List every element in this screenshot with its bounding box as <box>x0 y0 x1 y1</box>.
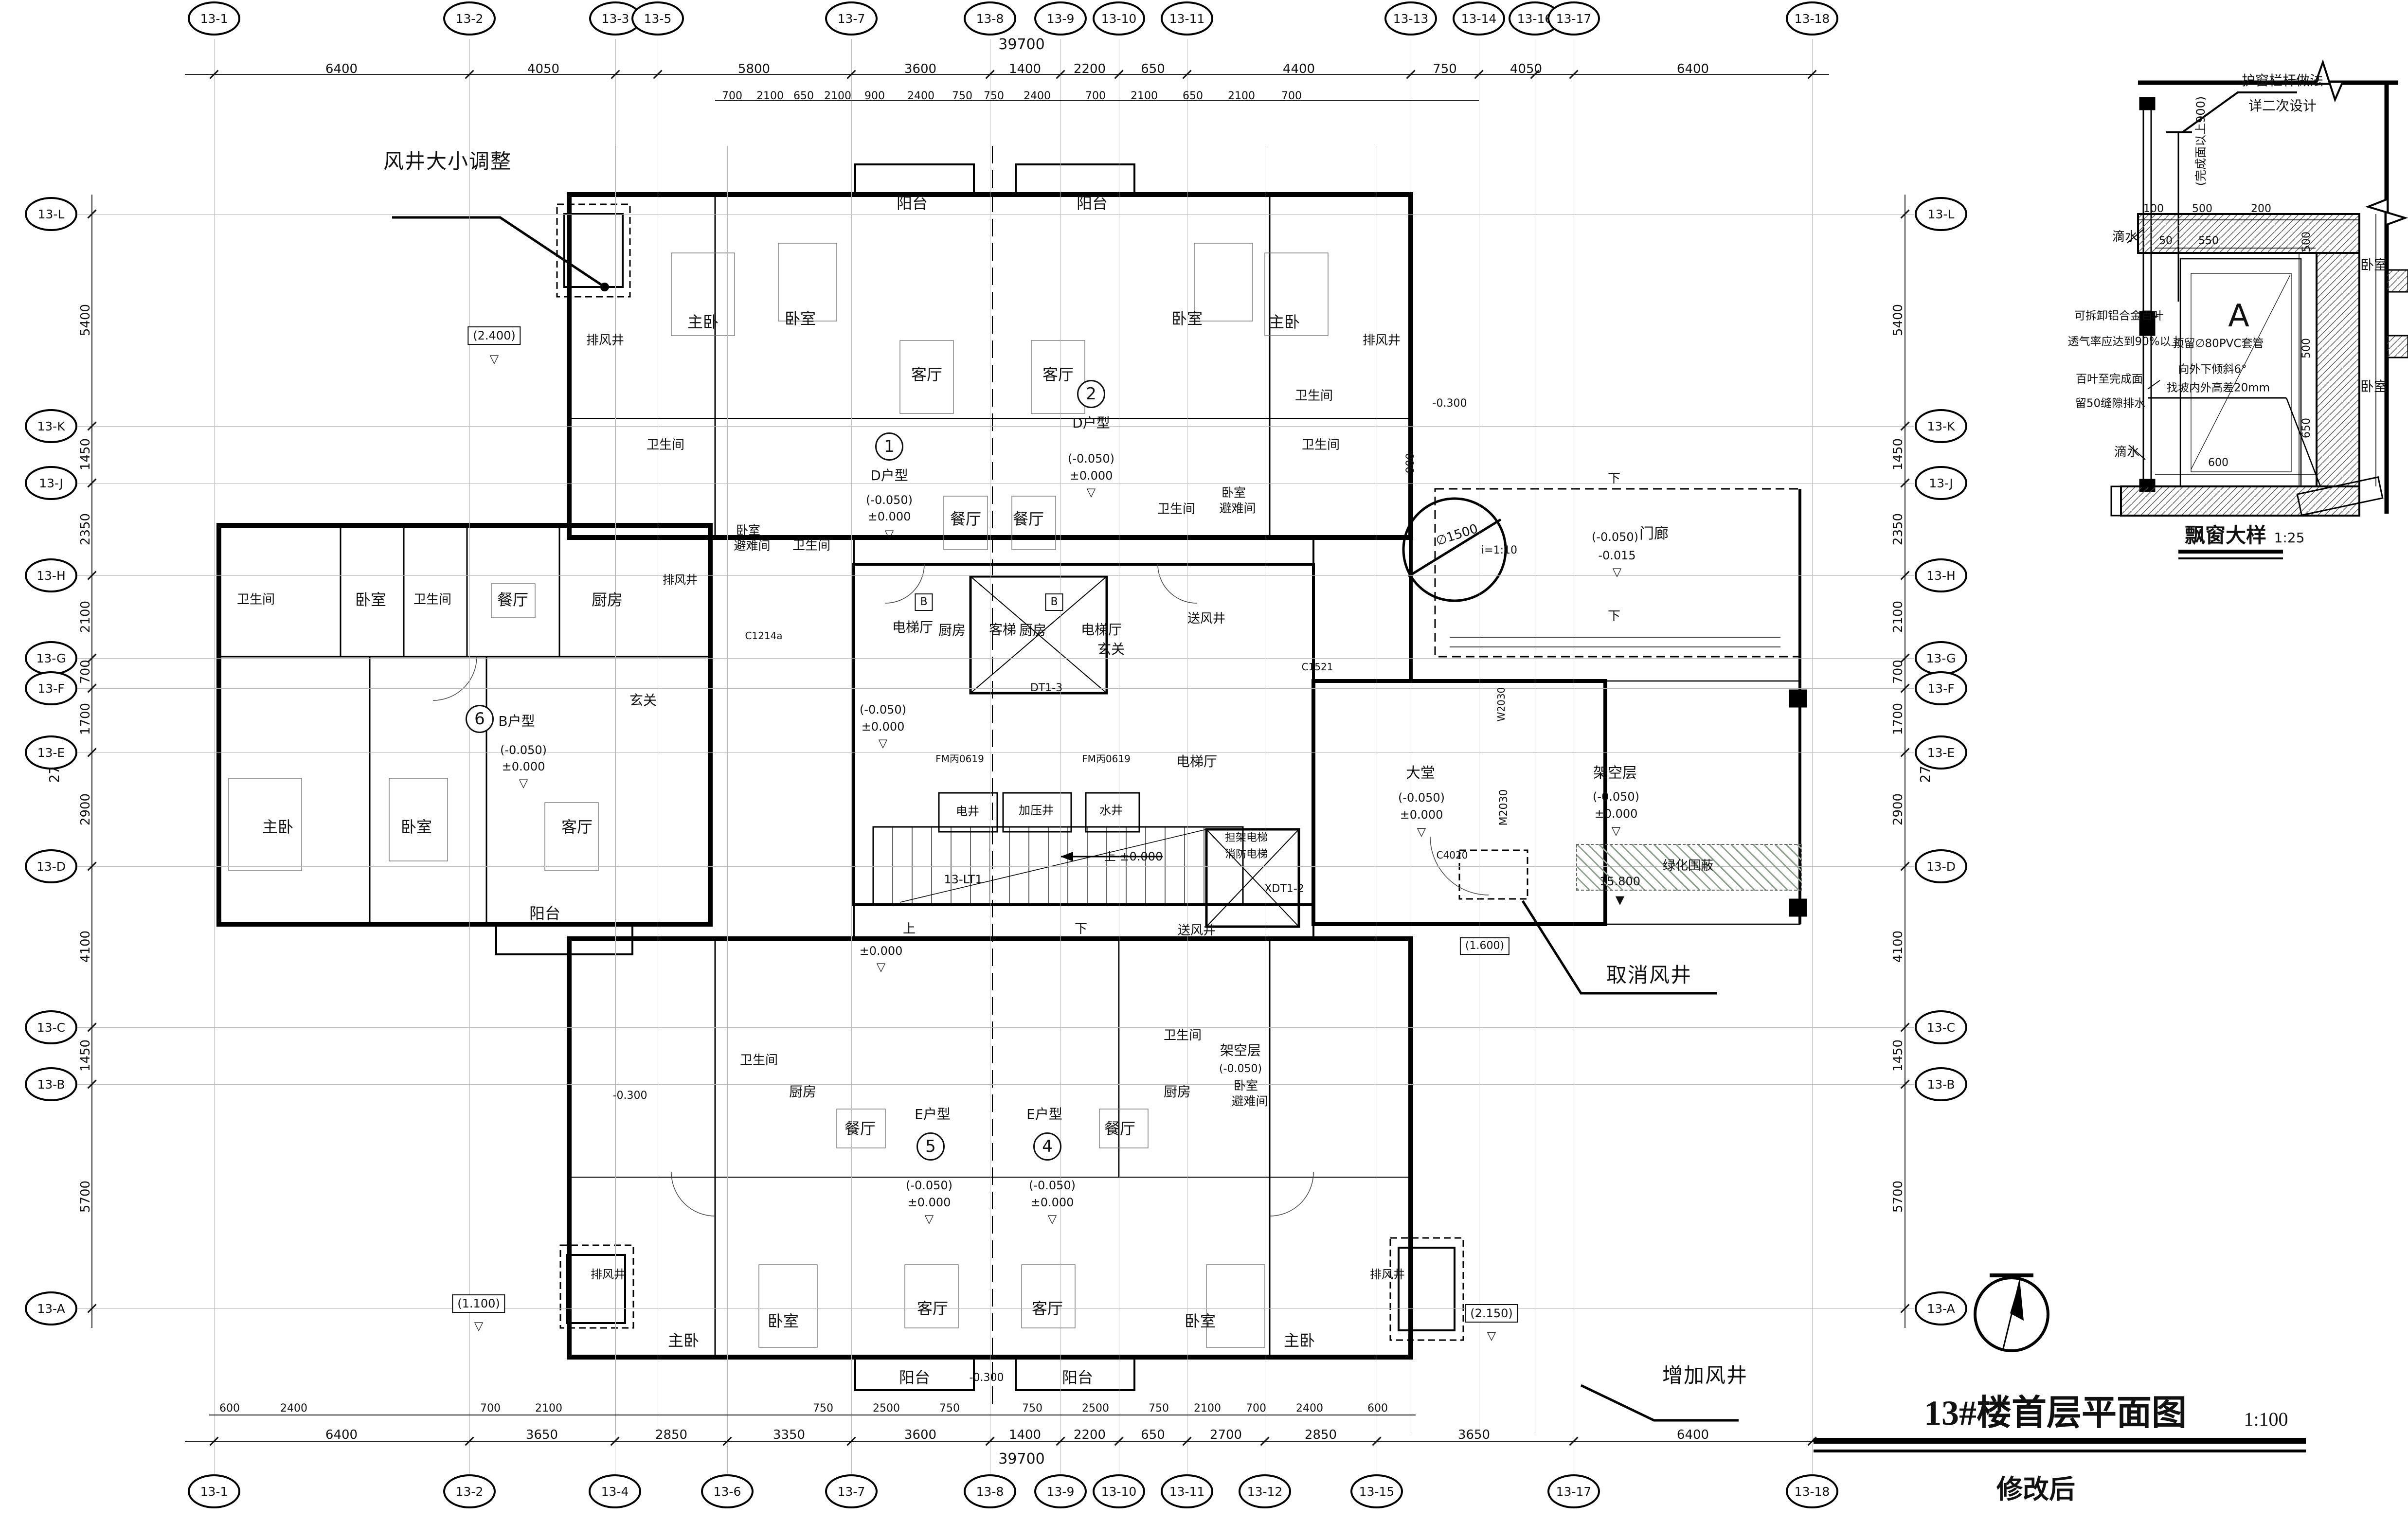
level-label: 15.800 <box>1599 876 1640 887</box>
dim: 4100 <box>79 931 92 963</box>
level-label: (-0.050) <box>1592 531 1638 543</box>
dim: 500 <box>2301 232 2312 252</box>
title-underline-thick <box>1814 1438 2306 1444</box>
room-label: 卧室 <box>401 819 432 835</box>
grid-bubble-13-K: 13-K <box>1915 409 1967 443</box>
dim: 650 <box>793 91 814 102</box>
room-label: 卧室 <box>1171 311 1203 326</box>
grid-line-13-5 <box>658 39 658 1435</box>
grid-bubble-13-H: 13-H <box>25 558 77 592</box>
sheet-title: 13#楼首层平面图 <box>1924 1396 2187 1431</box>
room-label: 厨房 <box>938 624 966 637</box>
dim: 5400 <box>79 304 92 336</box>
code-label: C1521 <box>1302 662 1333 672</box>
dim: 50 <box>2159 236 2173 247</box>
dim: 2850 <box>655 1429 687 1441</box>
room-label: 卧室 <box>736 524 760 537</box>
dim: 2100 <box>1131 91 1158 102</box>
dim: 6400 <box>1677 1429 1709 1441</box>
dim: 5800 <box>738 63 770 75</box>
room-label: 餐厅 <box>1013 511 1044 527</box>
grid-bubble-13-18: 13-18 <box>1786 1474 1838 1508</box>
room-label: 厨房 <box>789 1085 816 1099</box>
room-label: 电梯厅 <box>1176 755 1217 769</box>
detail-underline-thin <box>2178 557 2283 559</box>
level-label: ±0.000 <box>862 721 905 733</box>
level-mark: ▽ <box>879 737 887 749</box>
grid-line-13-B <box>73 1084 1914 1085</box>
code-label: XDT1-2 <box>1264 884 1304 895</box>
note-label: 预留∅80PVC套管 <box>2173 339 2264 350</box>
grid-bubble-13-8: 13-8 <box>964 1 1016 36</box>
room-label: 主卧 <box>1269 314 1300 330</box>
dim: 2100 <box>824 91 851 102</box>
room-label: 送风井 <box>1178 924 1216 937</box>
room-label: 卫生间 <box>1302 439 1340 451</box>
dim: 1700 <box>79 703 92 735</box>
dim: 2200 <box>1074 63 1106 75</box>
grid-line-13-3 <box>615 39 616 1435</box>
code-label: C1214a <box>745 631 782 641</box>
direction-label: 下 <box>1075 923 1087 935</box>
dim-total-bottom: 39700 <box>998 1452 1044 1467</box>
level-label: -0.015 <box>1598 550 1635 561</box>
level-label: ±0.000 <box>1070 470 1113 482</box>
level-mark: ▽ <box>877 961 885 973</box>
grid-line-13-17 <box>1574 146 1574 1474</box>
code-label: B <box>1045 593 1063 611</box>
grid-line-13-A <box>73 1308 1914 1309</box>
note-label: 找坡内外高差20mm <box>2167 383 2270 394</box>
level-label: (2.150) <box>1465 1304 1518 1323</box>
note-label: (完成面以上900) <box>2195 96 2207 186</box>
grid-bubble-13-G: 13-G <box>25 641 77 675</box>
note-label: 百叶至完成面 <box>2076 374 2143 385</box>
dim: 2400 <box>1024 91 1051 102</box>
grid-bubble-13-6: 13-6 <box>701 1474 754 1508</box>
title-underline-thin <box>1814 1450 2306 1452</box>
grid-line-13-2 <box>469 146 470 1474</box>
dim-line-left <box>91 195 92 1328</box>
dim: 6400 <box>325 1429 358 1441</box>
note-label: 护窗栏杆做法 <box>2242 74 2323 88</box>
grid-line-13-K <box>73 426 1914 427</box>
dim: 600 <box>2208 458 2228 468</box>
grid-bubble-13-A: 13-A <box>25 1291 77 1325</box>
room-label: 排风井 <box>1363 334 1401 347</box>
dim: 600 <box>219 1403 240 1414</box>
level-label: ±0.000 <box>1595 808 1638 820</box>
level-label: (-0.050) <box>906 1180 952 1191</box>
room-label: 客厅 <box>561 819 593 835</box>
room-label: 阳台 <box>899 1370 930 1385</box>
window-mark: A <box>2228 301 2249 332</box>
grid-bubble-13-J: 13-J <box>1915 466 1967 500</box>
dim: 2500 <box>873 1403 900 1414</box>
level-label: (-0.050) <box>1029 1180 1076 1191</box>
dim: 650 <box>1141 1429 1165 1441</box>
dim: 650 <box>1141 63 1165 75</box>
dim: 2350 <box>1892 513 1905 545</box>
grid-bubble-13-15: 13-15 <box>1350 1474 1403 1508</box>
dim: 2400 <box>1296 1403 1323 1414</box>
dim: 700 <box>79 660 92 684</box>
grid-line-13-12 <box>1265 146 1265 1474</box>
level-mark: ▽ <box>1612 825 1620 837</box>
grid-bubble-13-12: 13-12 <box>1239 1474 1291 1508</box>
dim: 650 <box>1183 91 1203 102</box>
room-label: 排风井 <box>586 334 624 347</box>
grid-bubble-13-17: 13-17 <box>1547 1474 1600 1508</box>
dim: 750 <box>1022 1403 1042 1414</box>
grid-line-13-14 <box>1479 39 1479 1435</box>
dim: 2100 <box>535 1403 562 1414</box>
level-label: -0.300 <box>613 1091 647 1101</box>
dim: 750 <box>952 91 972 102</box>
room-label: 送风井 <box>1187 612 1225 625</box>
dim: 1400 <box>1009 63 1041 75</box>
grid-bubble-13-F: 13-F <box>1915 671 1967 705</box>
grid-bubble-13-2: 13-2 <box>443 1 496 36</box>
dim: 550 <box>2198 236 2219 247</box>
room-label: 卧室 <box>768 1313 799 1329</box>
unit-type: D户型 <box>870 469 908 483</box>
room-label: 阳台 <box>897 196 928 211</box>
level-mark: ▽ <box>1487 1330 1496 1342</box>
grid-bubble-13-A: 13-A <box>1915 1291 1967 1325</box>
dim: 1450 <box>1892 1039 1905 1072</box>
grid-bubble-13-14: 13-14 <box>1453 1 1505 36</box>
note-label: 向外下倾斜6° <box>2178 364 2246 376</box>
direction-label: 下 <box>1608 610 1620 623</box>
level-mark: ▽ <box>474 1320 483 1332</box>
level-label: (1.600) <box>1460 937 1509 955</box>
detail-scale: 1:25 <box>2274 531 2305 545</box>
level-mark: ▽ <box>519 777 528 789</box>
dim: 500 <box>2192 204 2212 215</box>
grid-bubble-13-B: 13-B <box>25 1067 77 1101</box>
dim: 700 <box>1281 91 1302 102</box>
room-label: 卧室 <box>1222 487 1246 499</box>
room-label: 玄关 <box>629 694 657 707</box>
room-label: 卫生间 <box>647 439 684 451</box>
room-label: 主卧 <box>262 819 293 835</box>
dim: 3650 <box>526 1429 558 1441</box>
dim: 3350 <box>773 1429 805 1441</box>
note-label: 滴水 <box>2112 231 2138 243</box>
dim: 3600 <box>904 63 936 75</box>
room-label: 客厅 <box>1042 367 1074 382</box>
unit-type: E户型 <box>1026 1108 1062 1121</box>
dim: 4050 <box>1510 63 1542 75</box>
grid-line-13-13 <box>1411 39 1411 1435</box>
room-label: 卧室 <box>1234 1080 1258 1092</box>
room-label: 避难间 <box>734 540 770 552</box>
grid-bubble-13-K: 13-K <box>25 409 77 443</box>
room-label: 主卧 <box>1284 1333 1315 1348</box>
room-label: 主卧 <box>668 1333 699 1348</box>
unit-number: 6 <box>466 705 494 733</box>
room-label: 厨房 <box>592 592 623 608</box>
dim: 700 <box>722 91 742 102</box>
dim: 750 <box>1433 63 1457 75</box>
dim: 2200 <box>1074 1429 1106 1441</box>
room-label: 避难间 <box>1231 1095 1268 1108</box>
unit-type: E户型 <box>915 1108 951 1121</box>
dim: 500 <box>2301 338 2312 358</box>
level-label: (-0.050) <box>860 704 906 716</box>
dim: 2100 <box>756 91 784 102</box>
grid-bubble-13-2: 13-2 <box>443 1474 496 1508</box>
room-label: 餐厅 <box>845 1121 876 1136</box>
note-label: 留50缝隙排水 <box>2075 398 2145 410</box>
dim: 650 <box>2301 418 2312 438</box>
dim: 1450 <box>79 1039 92 1072</box>
unit-type: B户型 <box>498 715 535 728</box>
level-label: (1.100) <box>452 1294 505 1313</box>
level-mark: ▽ <box>1417 826 1426 838</box>
dim: 900 <box>864 91 885 102</box>
dim: 2900 <box>1892 793 1905 825</box>
grid-bubble-13-1: 13-1 <box>188 1474 240 1508</box>
dim: 700 <box>1085 91 1106 102</box>
unit-number: 2 <box>1077 380 1105 408</box>
grid-bubble-13-L: 13-L <box>1915 197 1967 231</box>
level-label: 上 ±0.000 <box>1104 851 1163 862</box>
room-label: 主卧 <box>687 314 719 330</box>
grid-line-13-H <box>73 575 1914 576</box>
grid-line-13-16 <box>1535 39 1535 1435</box>
room-label: 阳台 <box>529 906 560 921</box>
grid-bubble-13-13: 13-13 <box>1384 1 1437 36</box>
room-label: 架空层 <box>1593 766 1637 781</box>
dim: 600 <box>1367 1403 1388 1414</box>
dim: 2100 <box>1194 1403 1221 1414</box>
room-label: 阳台 <box>1062 1370 1093 1385</box>
dim: 700 <box>1246 1403 1266 1414</box>
grid-line-13-F <box>73 688 1914 689</box>
room-label: 电梯厅 <box>1081 623 1122 637</box>
room-label: 门廊 <box>1639 527 1669 541</box>
level-label: (-0.050) <box>500 744 547 756</box>
grid-bubble-13-B: 13-B <box>1915 1067 1967 1101</box>
level-label: (-0.050) <box>1219 1064 1262 1074</box>
room-label: 卫生间 <box>792 539 830 552</box>
grid-bubble-13-4: 13-4 <box>589 1474 641 1508</box>
grid-bubble-13-F: 13-F <box>25 671 77 705</box>
detail-title: 飘窗大样 <box>2185 526 2266 546</box>
grid-bubble-13-7: 13-7 <box>825 1474 878 1508</box>
room-label: 卧室 <box>355 592 386 608</box>
room-label: 排风井 <box>663 574 698 586</box>
level-label: ±0.000 <box>502 761 545 772</box>
grid-bubble-13-1: 13-1 <box>188 1 240 36</box>
room-label: 餐厅 <box>950 511 981 527</box>
room-label: 卫生间 <box>1157 503 1195 516</box>
code-label: B <box>915 593 933 611</box>
room-label: 客厅 <box>1032 1301 1063 1316</box>
drawing-sheet: 排风井排风井主卧卧室阳台阳台客厅客厅卧室主卧卫生间卫生间卧室避难间卫生间卫生间卧… <box>0 0 2408 1540</box>
annotation-cancel-shaft: 取消风井 <box>1606 965 1692 985</box>
dim: 700 <box>1892 660 1905 684</box>
grid-line-13-6 <box>727 146 728 1474</box>
grid-bubble-13-11: 13-11 <box>1161 1 1213 36</box>
level-label: -0.300 <box>1433 398 1467 409</box>
level-label: -0.300 <box>970 1373 1004 1383</box>
grid-bubble-13-18: 13-18 <box>1786 1 1838 36</box>
dim: 100 <box>2143 204 2164 215</box>
dim-line-bottom <box>185 1441 1829 1442</box>
annotation-add-shaft: 增加风井 <box>1662 1365 1748 1386</box>
room-label: 卧室 <box>2360 258 2388 272</box>
room-label: 厨房 <box>1019 624 1046 637</box>
dim: 1450 <box>79 438 92 470</box>
grid-bubble-13-G: 13-G <box>1915 641 1967 675</box>
grid-line-13-E <box>73 752 1914 753</box>
level-mark: ▽ <box>1613 566 1621 578</box>
grid-bubble-13-J: 13-J <box>25 466 77 500</box>
grid-bubble-13-9: 13-9 <box>1034 1474 1087 1508</box>
unit-number: 5 <box>916 1132 945 1161</box>
dim: 3650 <box>1458 1429 1490 1441</box>
room-label: 卧室 <box>1185 1313 1216 1329</box>
grid-bubble-13-L: 13-L <box>25 197 77 231</box>
dim-line-top <box>185 74 1829 75</box>
grid-bubble-13-E: 13-E <box>1915 735 1967 770</box>
room-label: 卫生间 <box>1164 1029 1202 1042</box>
sheet-scale: 1:100 <box>2244 1410 2288 1429</box>
dim-total-top: 39700 <box>998 37 1044 52</box>
dim: 1700 <box>1892 703 1905 735</box>
room-label: 加压井 <box>1019 805 1054 816</box>
grid-line-13-J <box>73 483 1914 483</box>
room-label: 卧室 <box>2360 380 2388 394</box>
level-label: ±0.000 <box>868 511 911 522</box>
level-label: ±0.000 <box>1400 809 1443 821</box>
level-mark: ▽ <box>1087 486 1096 498</box>
room-label: 电井 <box>956 806 979 817</box>
direction-label: 下 <box>1608 472 1620 485</box>
dim: 750 <box>1149 1403 1169 1414</box>
room-label: 玄关 <box>1097 643 1125 656</box>
dim: 1400 <box>1009 1429 1041 1441</box>
dim-line-bottom-2 <box>209 1415 1416 1415</box>
level-mark: ▽ <box>1048 1213 1057 1225</box>
room-label: 客厅 <box>911 367 942 382</box>
grid-bubble-13-7: 13-7 <box>825 1 878 36</box>
dim: 6400 <box>1677 63 1709 75</box>
grid-bubbles-layer: 13-113-213-313-513-713-813-913-1013-1113… <box>0 0 2408 1540</box>
annotation-shaft-size-adjust: 风井大小调整 <box>383 151 512 172</box>
grid-line-13-C <box>73 1027 1914 1028</box>
dim: 2400 <box>280 1403 307 1414</box>
level-label: ±0.000 <box>860 945 903 957</box>
room-label: 卫生间 <box>1295 390 1333 402</box>
dim: 700 <box>480 1403 501 1414</box>
dim: 2100 <box>1228 91 1255 102</box>
room-label: 阳台 <box>1077 196 1108 211</box>
dim: 750 <box>813 1403 833 1414</box>
room-label: 消防电梯 <box>1225 849 1268 860</box>
room-label: 卫生间 <box>237 593 275 606</box>
level-label: ±0.000 <box>1031 1197 1074 1208</box>
grid-bubble-13-H: 13-H <box>1915 558 1967 592</box>
level-mark: ▽ <box>885 528 894 540</box>
level-mark: ▼ <box>1616 894 1624 906</box>
code-label: M2030 <box>1499 789 1509 826</box>
level-mark: ▽ <box>925 1213 934 1225</box>
grid-bubble-13-D: 13-D <box>25 849 77 883</box>
dim: 900 <box>1405 453 1416 473</box>
grid-line-13-G <box>73 658 1914 659</box>
room-label: 餐厅 <box>1104 1121 1135 1136</box>
code-label: 13-LT1 <box>944 874 982 885</box>
dim: 750 <box>984 91 1004 102</box>
note-label: 滴水 <box>2114 446 2139 459</box>
grid-line-13-18 <box>1812 146 1813 1474</box>
grid-bubble-13-9: 13-9 <box>1034 1 1087 36</box>
room-label: 厨房 <box>1164 1085 1191 1099</box>
dim: 2350 <box>79 513 92 545</box>
dim-line-right <box>1905 195 1905 1328</box>
room-label: 避难间 <box>1219 502 1256 515</box>
dim: 2500 <box>1082 1403 1109 1414</box>
code-label: i=1:10 <box>1481 545 1517 556</box>
level-label: (2.400) <box>467 326 521 345</box>
grid-bubble-13-17: 13-17 <box>1547 1 1600 36</box>
note-label: 透气率应达到90%以上 <box>2067 337 2182 348</box>
grid-bubble-13-D: 13-D <box>1915 849 1967 883</box>
dim: 4100 <box>1892 931 1905 963</box>
room-label: 客梯 <box>989 623 1016 637</box>
dim: 5700 <box>1892 1181 1905 1213</box>
grid-bubble-13-11: 13-11 <box>1161 1474 1213 1508</box>
room-label: 餐厅 <box>497 592 528 608</box>
unit-number: 1 <box>875 432 903 461</box>
unit-number: 4 <box>1033 1132 1061 1161</box>
grid-bubble-13-10: 13-10 <box>1093 1474 1145 1508</box>
room-label: 大堂 <box>1406 766 1435 781</box>
room-label: 排风井 <box>591 1269 626 1280</box>
note-label: 详二次设计 <box>2248 99 2317 113</box>
grid-line-13-11 <box>1187 146 1187 1474</box>
dim: 750 <box>939 1403 960 1414</box>
grid-line-13-9 <box>1060 146 1061 1474</box>
dim: 5400 <box>1892 304 1905 336</box>
room-label: 卫生间 <box>413 593 451 606</box>
grid-bubble-13-C: 13-C <box>25 1010 77 1044</box>
grid-bubble-13-5: 13-5 <box>631 1 684 36</box>
dim: 6400 <box>325 63 358 75</box>
grid-line-13-L <box>73 214 1914 215</box>
code-label: DT1-3 <box>1030 683 1062 694</box>
grid-bubble-13-8: 13-8 <box>964 1474 1016 1508</box>
dim: 2700 <box>1210 1429 1242 1441</box>
code-label: C4020 <box>1437 850 1468 860</box>
level-label: ±0.000 <box>908 1197 951 1208</box>
dim: 200 <box>2251 204 2271 215</box>
grid-bubble-13-E: 13-E <box>25 735 77 770</box>
level-label: (-0.050) <box>1398 792 1445 804</box>
room-label: 卧室 <box>785 311 816 326</box>
note-label: 可拆卸铝合金百叶 <box>2074 311 2164 322</box>
room-label: 担架电梯 <box>1225 833 1268 843</box>
code-label: FM丙0619 <box>1082 754 1131 764</box>
dim: 2100 <box>79 601 92 633</box>
level-mark: ▽ <box>490 353 499 365</box>
dim: 4050 <box>527 63 559 75</box>
room-label: 水井 <box>1099 805 1123 816</box>
